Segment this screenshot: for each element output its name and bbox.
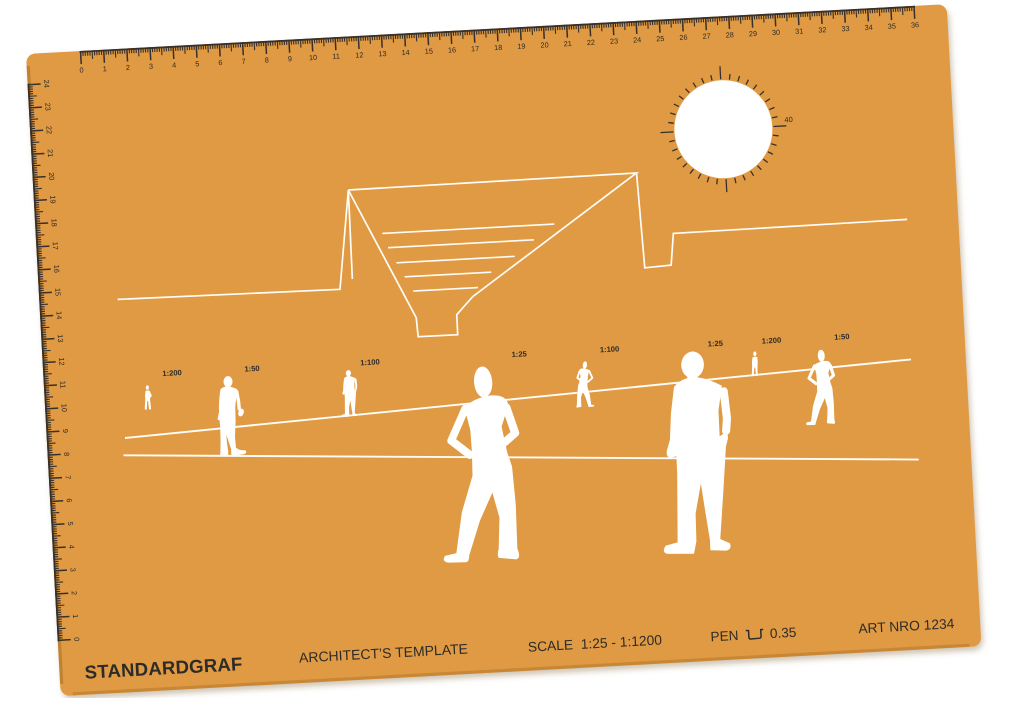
svg-text:13: 13 (378, 49, 387, 58)
svg-text:15: 15 (53, 288, 62, 297)
svg-text:10: 10 (309, 53, 318, 62)
svg-text:9: 9 (288, 54, 293, 63)
svg-text:15: 15 (425, 46, 434, 55)
svg-text:28: 28 (725, 30, 734, 39)
svg-text:1: 1 (102, 64, 107, 73)
svg-text:6: 6 (65, 498, 74, 503)
svg-text:1:50: 1:50 (244, 364, 260, 374)
svg-text:17: 17 (51, 241, 60, 250)
svg-text:13: 13 (56, 334, 65, 343)
svg-text:7: 7 (63, 475, 72, 480)
svg-text:2: 2 (70, 591, 79, 596)
svg-text:6: 6 (218, 58, 223, 67)
svg-text:8: 8 (62, 452, 71, 457)
svg-text:24: 24 (42, 79, 51, 88)
svg-text:21: 21 (46, 149, 55, 158)
svg-text:40: 40 (784, 115, 793, 124)
svg-text:5: 5 (66, 521, 75, 526)
svg-text:14: 14 (54, 311, 63, 320)
svg-text:8: 8 (265, 55, 270, 64)
svg-text:0: 0 (72, 637, 81, 642)
svg-text:1:200: 1:200 (162, 368, 182, 378)
svg-text:20: 20 (47, 172, 56, 181)
svg-text:PEN: PEN (710, 628, 739, 644)
svg-text:22: 22 (44, 126, 53, 135)
svg-text:0.35: 0.35 (770, 625, 797, 641)
svg-text:1:100: 1:100 (360, 357, 380, 367)
svg-text:2: 2 (126, 63, 131, 72)
svg-text:16: 16 (448, 45, 457, 54)
svg-text:17: 17 (471, 44, 480, 53)
svg-text:22: 22 (587, 38, 596, 47)
svg-text:0: 0 (79, 65, 84, 74)
svg-text:18: 18 (494, 43, 503, 52)
svg-text:23: 23 (43, 102, 52, 111)
svg-text:31: 31 (795, 26, 804, 35)
svg-text:1:25: 1:25 (511, 349, 527, 359)
svg-text:35: 35 (888, 21, 897, 30)
svg-text:30: 30 (772, 28, 781, 37)
svg-text:33: 33 (841, 24, 850, 33)
svg-text:36: 36 (911, 20, 920, 29)
svg-text:1:25: 1:25 (708, 339, 724, 349)
svg-text:5: 5 (195, 59, 200, 68)
svg-text:19: 19 (48, 195, 57, 204)
svg-text:9: 9 (61, 429, 70, 434)
svg-text:25: 25 (656, 34, 665, 43)
svg-text:20: 20 (540, 40, 549, 49)
svg-text:18: 18 (49, 218, 58, 227)
svg-text:1:50: 1:50 (834, 332, 850, 342)
svg-text:11: 11 (332, 52, 340, 61)
svg-text:12: 12 (57, 357, 66, 366)
svg-text:16: 16 (52, 265, 61, 274)
svg-text:32: 32 (818, 25, 827, 34)
svg-text:19: 19 (517, 41, 526, 50)
svg-text:21: 21 (563, 39, 572, 48)
svg-text:10: 10 (59, 404, 68, 413)
svg-text:1:200: 1:200 (762, 336, 782, 346)
svg-text:23: 23 (610, 36, 619, 45)
svg-text:26: 26 (679, 33, 688, 42)
svg-text:1: 1 (71, 614, 80, 619)
svg-text:1:100: 1:100 (600, 344, 620, 354)
svg-text:4: 4 (67, 544, 76, 549)
svg-text:27: 27 (702, 31, 711, 40)
svg-text:3: 3 (68, 568, 77, 573)
svg-text:24: 24 (633, 35, 642, 44)
svg-text:12: 12 (355, 50, 364, 59)
svg-text:4: 4 (172, 60, 177, 69)
svg-text:3: 3 (149, 62, 154, 71)
svg-text:7: 7 (241, 57, 246, 66)
svg-text:14: 14 (401, 48, 410, 57)
svg-text:34: 34 (864, 23, 873, 32)
svg-text:29: 29 (749, 29, 758, 38)
svg-text:11: 11 (58, 381, 67, 389)
